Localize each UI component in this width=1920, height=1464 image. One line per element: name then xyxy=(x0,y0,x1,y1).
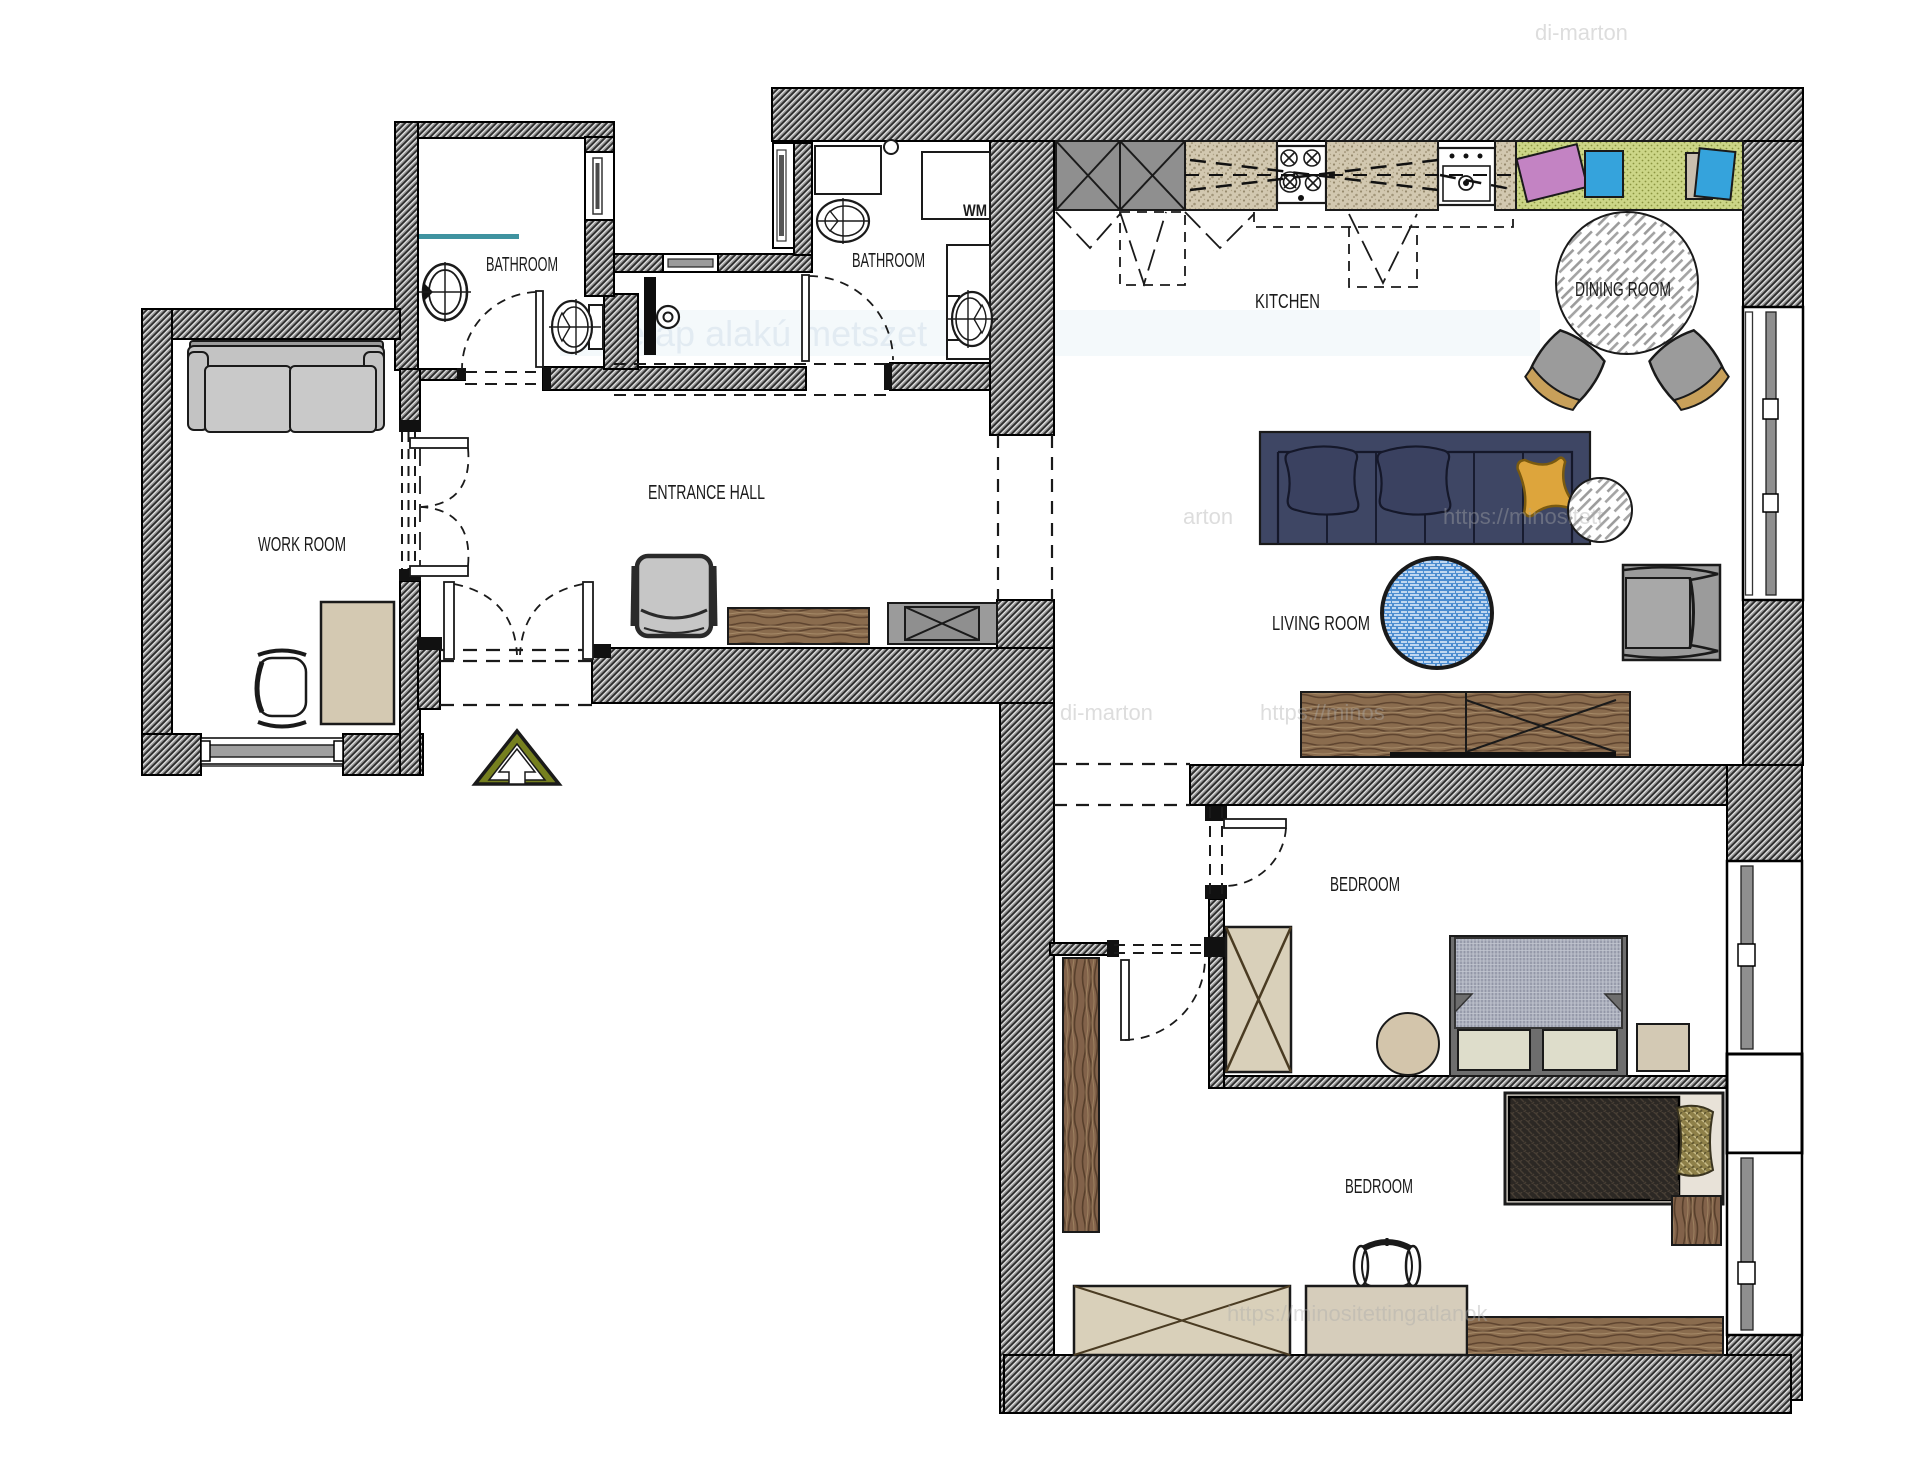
svg-text:di-marton: di-marton xyxy=(1060,700,1153,725)
svg-text:di-marton: di-marton xyxy=(1535,20,1628,45)
svg-text:KITCHEN: KITCHEN xyxy=(1255,291,1320,313)
svg-text:https://minos: https://minos xyxy=(1260,700,1385,725)
svg-text:arton: arton xyxy=(1183,504,1233,529)
svg-text:WM: WM xyxy=(963,201,987,220)
svg-text:https://minositett: https://minositett xyxy=(1443,504,1603,529)
svg-text:https://minositettingatlanok: https://minositettingatlanok xyxy=(1227,1301,1488,1326)
svg-text:WORK ROOM: WORK ROOM xyxy=(258,534,346,556)
svg-text:BEDROOM: BEDROOM xyxy=(1330,874,1400,896)
svg-text:BEDROOM: BEDROOM xyxy=(1345,1176,1413,1198)
svg-text:LIVING ROOM: LIVING ROOM xyxy=(1272,613,1370,635)
svg-text:BATHROOM: BATHROOM xyxy=(852,250,925,272)
svg-text:DINING ROOM: DINING ROOM xyxy=(1575,279,1671,301)
svg-text:BATHROOM: BATHROOM xyxy=(486,254,558,276)
svg-text:ENTRANCE HALL: ENTRANCE HALL xyxy=(648,482,765,504)
